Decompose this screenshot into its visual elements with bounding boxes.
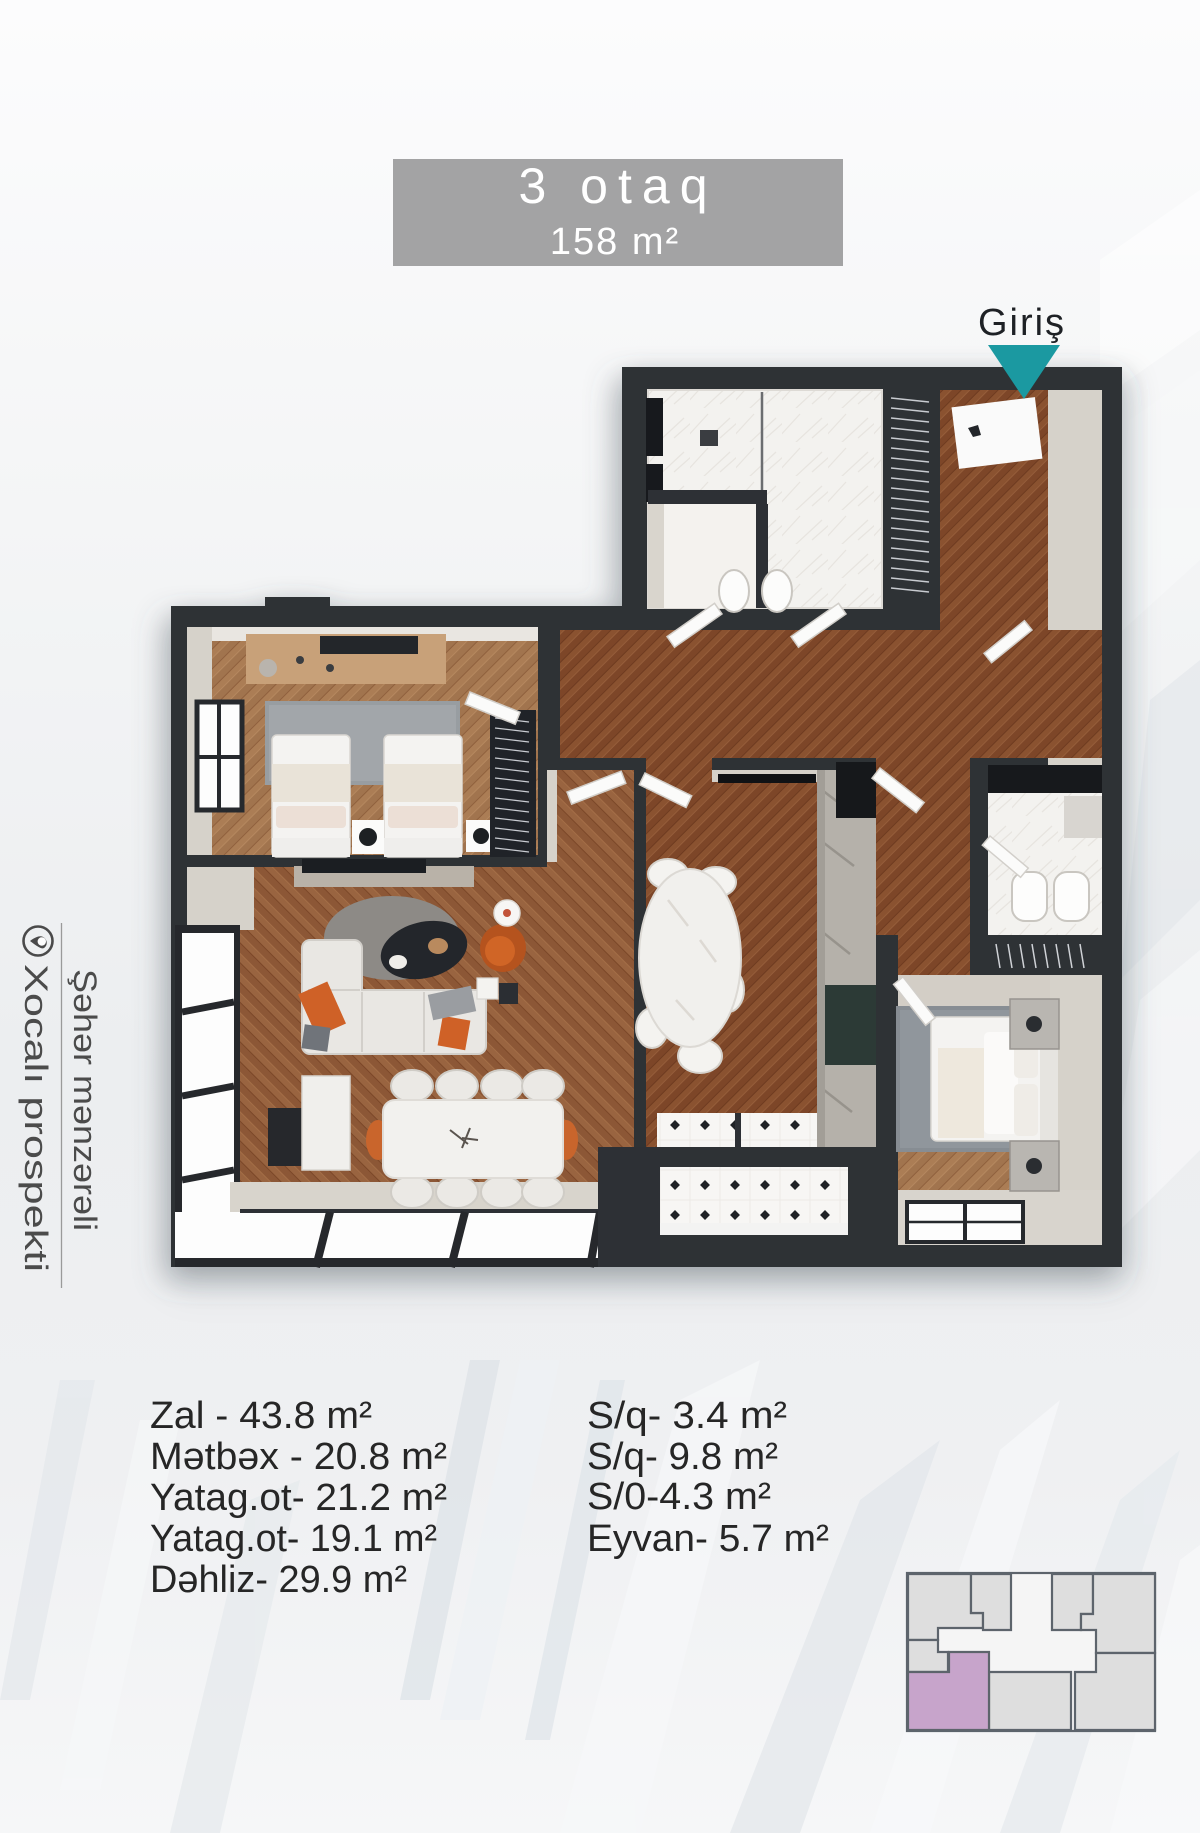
svg-text:Xocalı prospekti: Xocalı prospekti — [18, 964, 54, 1272]
svg-text:Giriş: Giriş — [978, 302, 1066, 344]
svg-text:Dəhliz- 29.9 m²: Dəhliz- 29.9 m² — [150, 1559, 407, 1601]
svg-text:Yatag.ot- 21.2 m²: Yatag.ot- 21.2 m² — [150, 1477, 447, 1519]
svg-text:Yatag.ot- 19.1 m²: Yatag.ot- 19.1 m² — [150, 1518, 437, 1560]
svg-text:3 otaq: 3 otaq — [518, 158, 717, 214]
svg-text:Eyvan- 5.7 m²: Eyvan- 5.7 m² — [587, 1518, 829, 1560]
svg-text:S/q- 3.4 m²: S/q- 3.4 m² — [587, 1395, 787, 1437]
svg-text:158 m²: 158 m² — [550, 221, 680, 263]
svg-text:Şəhər mənzərəli: Şəhər mənzərəli — [67, 969, 103, 1231]
svg-text:S/q- 9.8 m²: S/q- 9.8 m² — [587, 1436, 778, 1478]
svg-text:Mətbəx - 20.8 m²: Mətbəx - 20.8 m² — [150, 1436, 447, 1478]
svg-text:S/0-4.3 m²: S/0-4.3 m² — [587, 1476, 771, 1518]
svg-text:Zal - 43.8 m²: Zal - 43.8 m² — [150, 1395, 372, 1437]
